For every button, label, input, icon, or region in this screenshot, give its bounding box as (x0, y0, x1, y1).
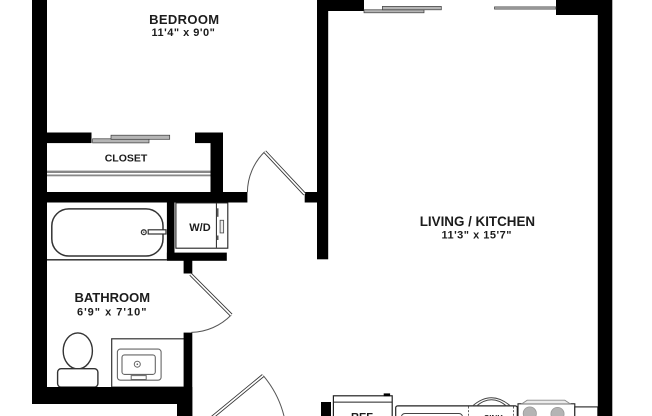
svg-text:BEDROOM: BEDROOM (149, 12, 219, 27)
svg-text:W/D: W/D (189, 222, 210, 234)
svg-text:CLOSET: CLOSET (105, 153, 148, 165)
svg-text:BATHROOM: BATHROOM (75, 290, 151, 305)
svg-text:11'4" x 9'0": 11'4" x 9'0" (151, 27, 215, 39)
svg-text:11'3" x 15'7": 11'3" x 15'7" (441, 230, 512, 242)
svg-text:LIVING / KITCHEN: LIVING / KITCHEN (420, 214, 535, 229)
svg-text:6'9" x 7'10": 6'9" x 7'10" (77, 307, 147, 319)
svg-text:REF: REF (351, 412, 373, 416)
